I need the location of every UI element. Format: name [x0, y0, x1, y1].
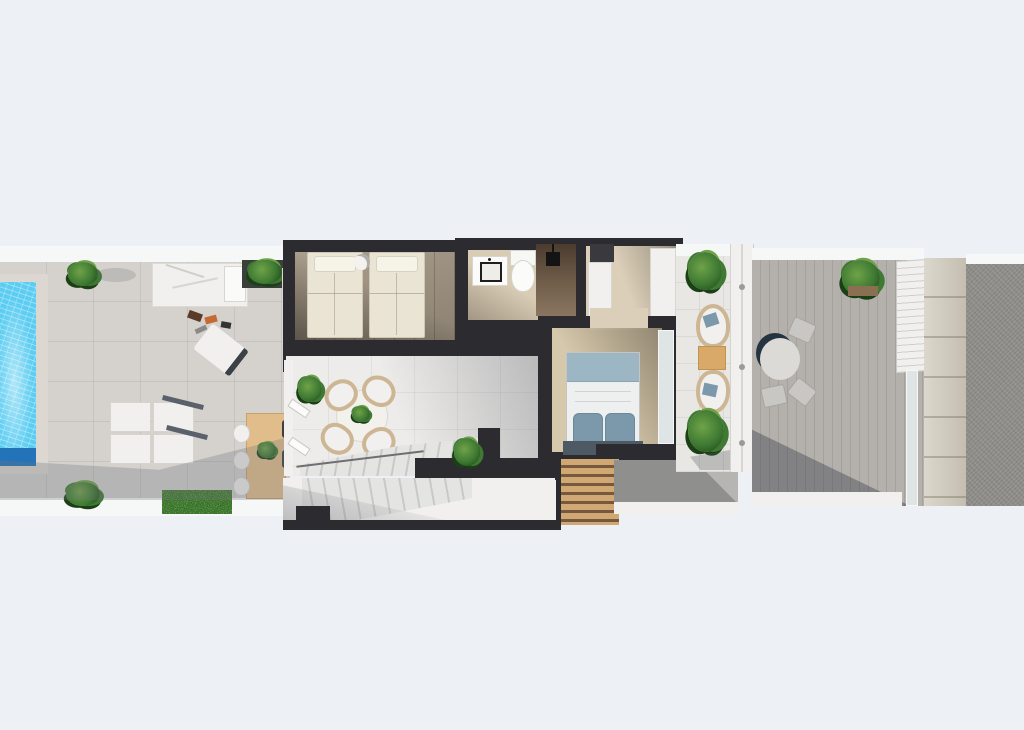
ceiling-fan-unit	[590, 244, 614, 262]
dining-chair	[233, 477, 250, 496]
stair-plant	[454, 438, 480, 466]
wood-slat-pergola	[556, 456, 619, 525]
sink-tap	[488, 258, 491, 261]
hinge	[739, 364, 745, 370]
sofa-cushion	[110, 402, 151, 432]
bed-fold-line	[334, 273, 335, 335]
glass-divider	[906, 370, 918, 506]
shower-arm	[552, 244, 554, 254]
balustrade-post	[741, 244, 743, 472]
side-table	[698, 346, 726, 370]
wardrobe	[650, 248, 676, 320]
deck-table	[760, 338, 800, 380]
bed-fold-line	[396, 273, 397, 335]
outdoor-sofa	[110, 402, 194, 464]
bed-fold-line	[575, 401, 631, 402]
toilet-bowl	[511, 260, 535, 292]
table-centerpiece	[258, 442, 276, 458]
sofa-cushion	[110, 434, 151, 464]
patio-table-centerpiece	[352, 406, 370, 422]
walkway-edge	[614, 502, 738, 514]
deck-top-wall	[752, 248, 924, 260]
hedge-planter	[162, 490, 232, 514]
deck-planter	[848, 286, 878, 296]
glass-balustrade	[730, 244, 754, 472]
chair-cushion-blue	[702, 383, 718, 398]
bed-fold-line	[370, 293, 424, 294]
floor-plan-render	[0, 0, 1024, 730]
bed-pillow	[376, 256, 418, 272]
terrace-plant	[688, 252, 722, 290]
dining-chair	[233, 451, 250, 470]
pool-deep-end	[0, 448, 36, 466]
potted-plant	[66, 482, 100, 506]
bed-fold-line	[308, 293, 362, 294]
deck-bottom-edge	[752, 492, 902, 506]
shower-head	[546, 252, 560, 266]
potted-plant	[68, 262, 98, 286]
building-bottom-wall	[283, 520, 561, 530]
sink-basin	[480, 262, 502, 282]
terrace-bottom-wall	[0, 498, 285, 516]
gravel-roof-area	[966, 264, 1024, 506]
sofa-cushion	[153, 434, 194, 464]
hinge	[739, 284, 745, 290]
hinge	[739, 440, 745, 446]
master-glass-door	[658, 330, 674, 444]
terrace-plant	[688, 410, 724, 452]
lounge-chair	[696, 304, 730, 348]
bedside-lamp	[354, 254, 370, 270]
bed-pillow	[314, 256, 356, 272]
shower	[536, 244, 576, 316]
swimming-pool	[0, 282, 36, 466]
stone-wall-strip	[924, 258, 966, 506]
patio-plant	[298, 376, 322, 402]
gravel-top-edge	[966, 254, 1024, 264]
patio-door-frame	[284, 360, 293, 476]
dining-chair	[233, 424, 250, 443]
single-bed	[369, 252, 425, 338]
bed-blanket-band	[567, 353, 639, 382]
vanity-sink	[472, 256, 508, 286]
bed-fold-line	[575, 391, 631, 392]
hall-opening	[590, 308, 648, 330]
planter-plant	[248, 260, 282, 284]
double-bed	[566, 352, 640, 454]
